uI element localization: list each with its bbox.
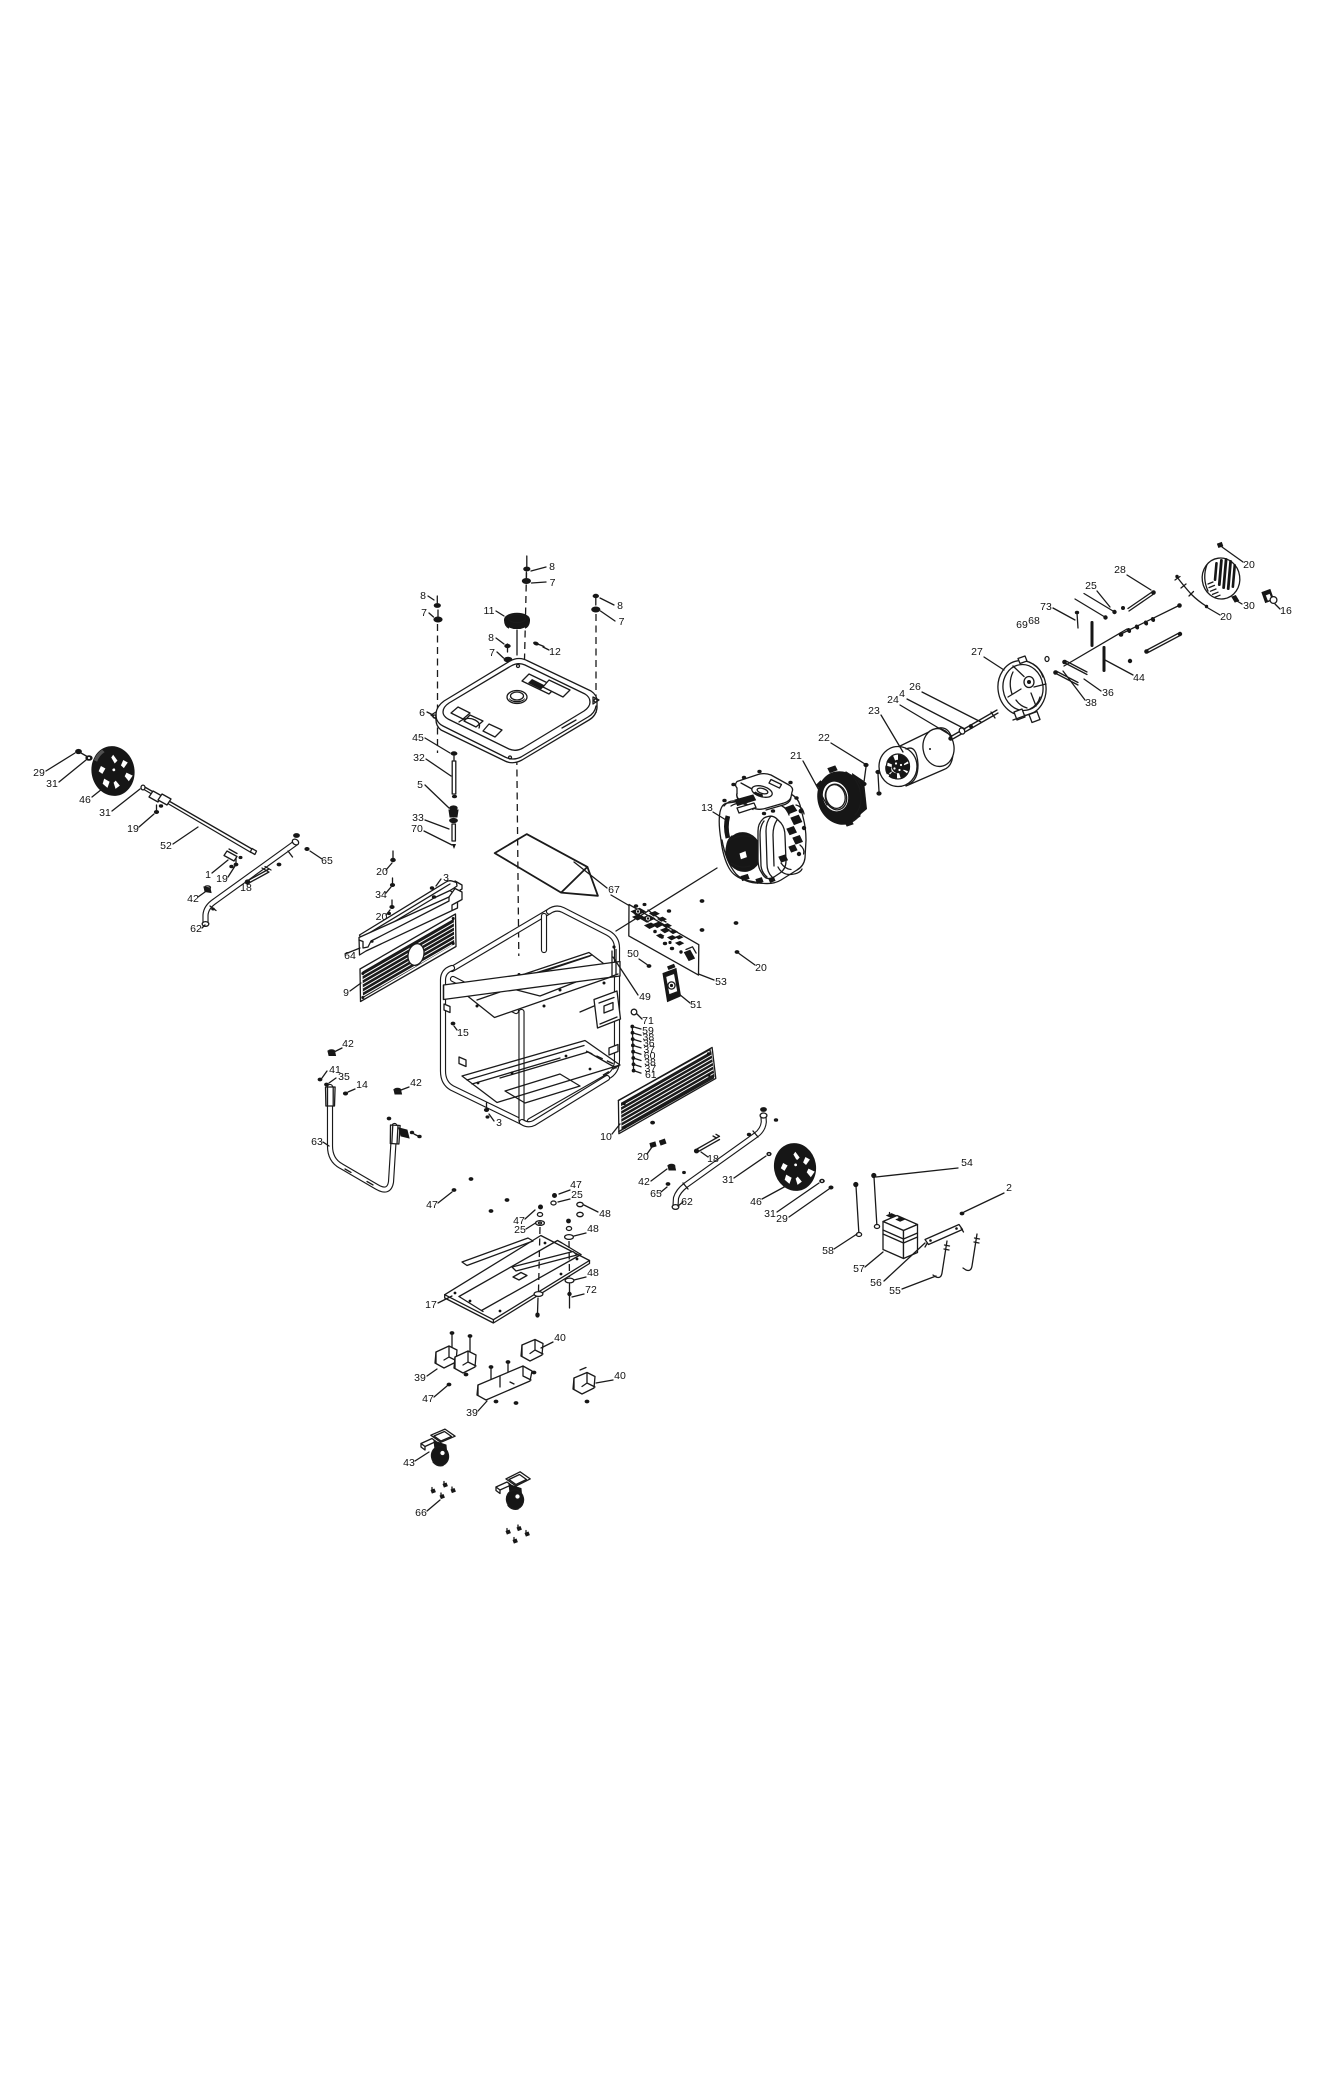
svg-text:3: 3 <box>496 1117 502 1129</box>
svg-text:55: 55 <box>889 1285 901 1297</box>
svg-text:13: 13 <box>701 802 713 814</box>
svg-text:2: 2 <box>1006 1182 1012 1194</box>
svg-text:15: 15 <box>457 1027 469 1039</box>
svg-text:16: 16 <box>1280 605 1292 617</box>
svg-text:68: 68 <box>1028 615 1040 627</box>
svg-text:20: 20 <box>376 911 388 923</box>
svg-text:56: 56 <box>870 1277 882 1289</box>
svg-text:49: 49 <box>639 991 651 1003</box>
svg-text:69: 69 <box>1016 619 1028 631</box>
svg-text:48: 48 <box>587 1223 599 1235</box>
svg-text:20: 20 <box>755 962 767 974</box>
svg-text:20: 20 <box>1220 611 1232 623</box>
svg-text:6: 6 <box>419 707 425 719</box>
svg-text:72: 72 <box>585 1284 597 1296</box>
svg-text:17: 17 <box>425 1299 437 1311</box>
svg-text:20: 20 <box>1243 559 1255 571</box>
svg-text:14: 14 <box>356 1079 368 1091</box>
svg-text:22: 22 <box>818 732 830 744</box>
svg-text:25: 25 <box>1085 580 1097 592</box>
svg-text:51: 51 <box>690 999 702 1011</box>
svg-text:67: 67 <box>608 884 620 896</box>
svg-text:62: 62 <box>190 923 202 935</box>
svg-text:57: 57 <box>853 1263 865 1275</box>
svg-text:58: 58 <box>822 1245 834 1257</box>
svg-text:73: 73 <box>1040 601 1052 613</box>
svg-text:3: 3 <box>443 872 449 884</box>
svg-text:43: 43 <box>403 1457 415 1469</box>
svg-text:50: 50 <box>627 948 639 960</box>
svg-text:25: 25 <box>571 1189 583 1201</box>
svg-text:29: 29 <box>33 767 45 779</box>
svg-text:31: 31 <box>99 807 111 819</box>
svg-text:7: 7 <box>421 607 427 619</box>
svg-text:70: 70 <box>411 823 423 835</box>
svg-text:7: 7 <box>489 647 495 659</box>
svg-text:31: 31 <box>46 778 58 790</box>
svg-text:54: 54 <box>961 1157 973 1169</box>
svg-text:53: 53 <box>715 976 727 988</box>
svg-text:42: 42 <box>342 1038 354 1050</box>
svg-text:46: 46 <box>750 1196 762 1208</box>
svg-text:19: 19 <box>216 873 228 885</box>
svg-text:8: 8 <box>549 561 555 573</box>
svg-text:21: 21 <box>790 750 802 762</box>
svg-text:40: 40 <box>614 1370 626 1382</box>
svg-text:63: 63 <box>311 1136 323 1148</box>
svg-text:1: 1 <box>205 869 211 881</box>
svg-text:36: 36 <box>1102 687 1114 699</box>
svg-text:18: 18 <box>707 1153 719 1165</box>
svg-text:42: 42 <box>638 1176 650 1188</box>
svg-text:20: 20 <box>376 866 388 878</box>
svg-text:8: 8 <box>617 600 623 612</box>
svg-text:39: 39 <box>466 1407 478 1419</box>
svg-text:29: 29 <box>776 1213 788 1225</box>
svg-text:8: 8 <box>420 590 426 602</box>
svg-text:40: 40 <box>554 1332 566 1344</box>
svg-text:5: 5 <box>417 779 423 791</box>
svg-text:4: 4 <box>899 688 905 700</box>
svg-text:31: 31 <box>722 1174 734 1186</box>
svg-text:25: 25 <box>514 1224 526 1236</box>
svg-text:31: 31 <box>764 1208 776 1220</box>
svg-text:47: 47 <box>426 1199 438 1211</box>
svg-text:39: 39 <box>414 1372 426 1384</box>
svg-text:42: 42 <box>410 1077 422 1089</box>
svg-text:7: 7 <box>550 577 556 589</box>
svg-text:42: 42 <box>187 893 199 905</box>
svg-text:46: 46 <box>79 794 91 806</box>
svg-text:47: 47 <box>422 1393 434 1405</box>
svg-text:44: 44 <box>1133 672 1145 684</box>
svg-text:66: 66 <box>415 1507 427 1519</box>
svg-text:18: 18 <box>240 882 252 894</box>
svg-text:52: 52 <box>160 840 172 852</box>
svg-text:35: 35 <box>338 1071 350 1083</box>
svg-text:10: 10 <box>600 1131 612 1143</box>
svg-text:23: 23 <box>868 705 880 717</box>
svg-text:27: 27 <box>971 646 983 658</box>
svg-text:19: 19 <box>127 823 139 835</box>
svg-text:28: 28 <box>1114 564 1126 576</box>
svg-text:11: 11 <box>484 605 495 617</box>
svg-text:8: 8 <box>488 632 494 644</box>
svg-text:38: 38 <box>1085 697 1097 709</box>
svg-text:26: 26 <box>909 681 921 693</box>
svg-text:7: 7 <box>619 616 625 628</box>
svg-text:30: 30 <box>1243 600 1255 612</box>
svg-text:9: 9 <box>343 987 349 999</box>
svg-text:12: 12 <box>549 646 561 658</box>
svg-text:45: 45 <box>412 732 424 744</box>
svg-text:32: 32 <box>413 752 425 764</box>
svg-text:48: 48 <box>599 1208 611 1220</box>
svg-text:65: 65 <box>650 1188 662 1200</box>
svg-text:34: 34 <box>375 889 387 901</box>
svg-text:48: 48 <box>587 1267 599 1279</box>
svg-text:24: 24 <box>887 694 899 706</box>
svg-text:65: 65 <box>321 855 333 867</box>
